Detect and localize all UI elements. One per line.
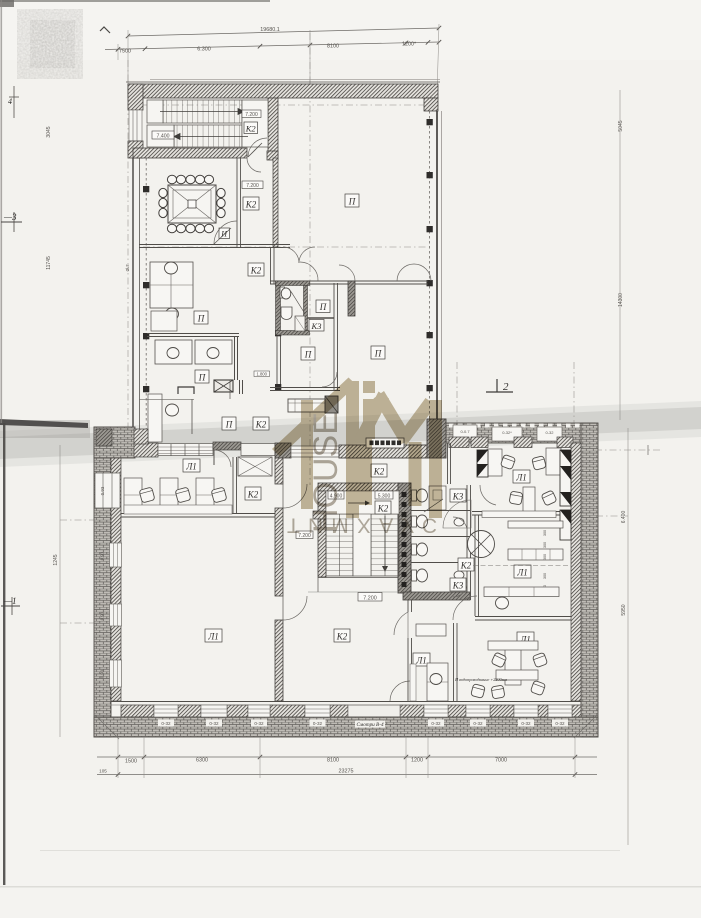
svg-text:1245: 1245	[53, 554, 59, 565]
svg-text:К2: К2	[336, 632, 348, 642]
svg-text:0-32: 0-32	[555, 721, 565, 726]
svg-text:23275: 23275	[339, 769, 354, 775]
svg-text:0-32: 0-32	[161, 721, 171, 726]
svg-text:П: П	[304, 350, 312, 360]
svg-text:6.300: 6.300	[197, 47, 211, 53]
svg-text:7000: 7000	[495, 758, 507, 764]
svg-text:6.400: 6.400	[621, 511, 627, 524]
svg-text:К3: К3	[452, 581, 464, 591]
svg-text:1200*: 1200*	[402, 42, 417, 48]
svg-text:0-32: 0-32	[431, 721, 441, 726]
svg-text:Л1: Л1	[515, 473, 527, 483]
svg-text:К3: К3	[311, 321, 322, 331]
svg-text:19680.1: 19680.1	[260, 27, 280, 33]
svg-text:П: П	[197, 314, 205, 324]
svg-text:7.400: 7.400	[157, 134, 170, 140]
svg-text:5.300: 5.300	[378, 494, 391, 500]
svg-text:Л1: Л1	[207, 632, 219, 642]
svg-text:—3: —3	[3, 212, 17, 222]
svg-text:К3: К3	[452, 492, 464, 502]
svg-text:П: П	[319, 302, 327, 312]
svg-text:2: 2	[503, 381, 509, 393]
svg-text:0-32*: 0-32*	[502, 430, 512, 435]
svg-text:5045: 5045	[618, 120, 624, 131]
svg-text:П: П	[374, 349, 382, 359]
svg-text:К2: К2	[247, 490, 259, 500]
svg-text:0.91: 0.91	[100, 669, 105, 678]
svg-text:0-0.7: 0-0.7	[460, 429, 470, 434]
svg-text:7.200: 7.200	[363, 596, 377, 602]
svg-text:3045: 3045	[46, 126, 52, 137]
svg-text:300: 300	[543, 542, 547, 548]
svg-text:К2: К2	[255, 420, 267, 430]
svg-text:300: 300	[543, 554, 547, 560]
svg-text:Смотри В-4: Смотри В-4	[356, 721, 383, 728]
svg-text:П: П	[198, 373, 206, 383]
svg-text:К2: К2	[245, 200, 257, 210]
svg-text:—1: —1	[3, 596, 17, 606]
svg-text:К2: К2	[460, 561, 472, 571]
svg-text:1200: 1200	[411, 758, 423, 764]
svg-text:11745: 11745	[46, 256, 52, 270]
svg-text:7.200: 7.200	[245, 112, 258, 118]
svg-text:8100: 8100	[327, 758, 339, 764]
svg-text:0-32: 0-32	[473, 721, 483, 726]
svg-text:14300: 14300	[618, 293, 624, 307]
svg-text:0.91: 0.91	[100, 551, 105, 560]
svg-text:300: 300	[543, 530, 547, 536]
svg-text:П: П	[225, 420, 233, 430]
svg-text:5950: 5950	[621, 604, 627, 615]
svg-text:0-32: 0-32	[313, 721, 323, 726]
svg-text:К2: К2	[250, 266, 262, 276]
svg-text:К2: К2	[373, 467, 385, 477]
svg-text:4: 4	[8, 97, 12, 106]
svg-text:0-32: 0-32	[254, 721, 264, 726]
svg-text:105: 105	[99, 769, 107, 774]
svg-text:7.200: 7.200	[246, 183, 259, 189]
svg-text:7500: 7500	[119, 49, 131, 55]
svg-text:8100: 8100	[327, 44, 339, 50]
svg-text:К2: К2	[245, 123, 257, 133]
svg-text:Л1: Л1	[185, 462, 197, 472]
svg-text:0-32: 0-32	[521, 721, 531, 726]
svg-text:Ø.7: Ø.7	[125, 264, 130, 272]
svg-text:0.93: 0.93	[100, 486, 105, 495]
svg-text:П: П	[348, 197, 356, 207]
svg-text:Л1: Л1	[415, 656, 427, 666]
svg-text:300: 300	[543, 573, 547, 579]
svg-text:0-32: 0-32	[209, 721, 219, 726]
svg-text:1.800: 1.800	[256, 372, 267, 377]
svg-text:6300: 6300	[196, 758, 208, 764]
svg-text:1500: 1500	[125, 759, 137, 765]
svg-text:0-32: 0-32	[545, 430, 554, 435]
svg-text:К2: К2	[377, 504, 389, 514]
svg-text:0.91: 0.91	[100, 611, 105, 620]
svg-text:И водопроводкание +2200мм: И водопроводкание +2200мм	[454, 677, 507, 682]
svg-text:Л1: Л1	[516, 568, 528, 578]
